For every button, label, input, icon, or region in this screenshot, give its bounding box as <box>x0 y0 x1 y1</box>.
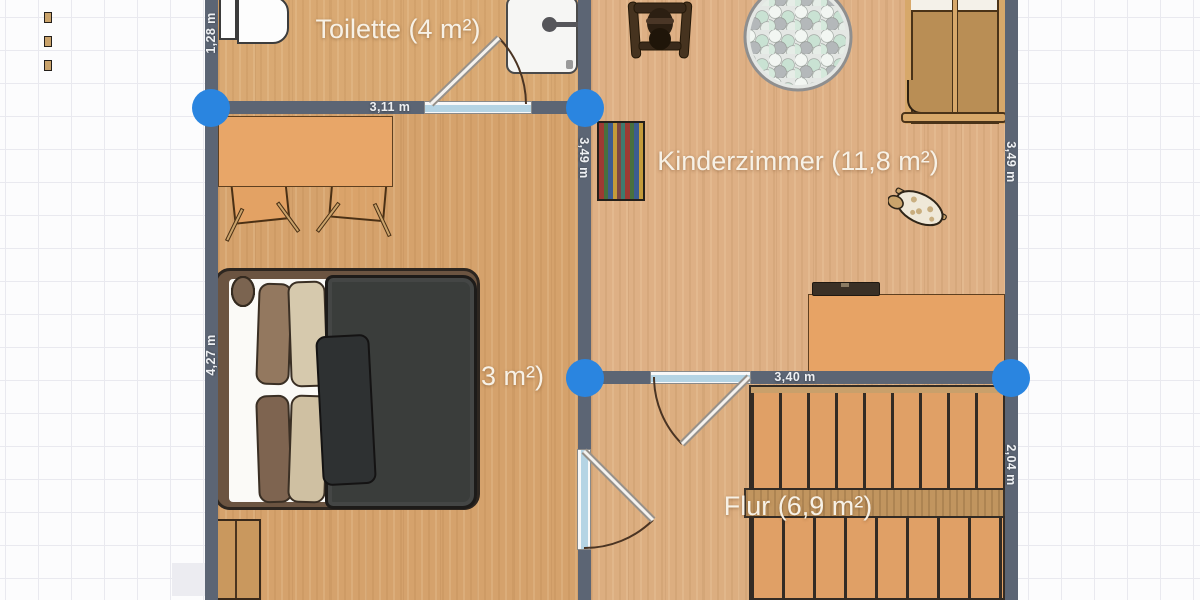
room-label-schlafzimmer: 3 m²) <box>481 361 601 392</box>
ball-pit[interactable] <box>743 0 853 92</box>
dimension-label: 2,04 m <box>1004 435 1018 495</box>
bookshelf-knob <box>44 12 52 23</box>
wardrobe-door-split <box>235 521 237 598</box>
crib-rail <box>952 0 958 118</box>
rocking-horse-icon <box>626 0 694 62</box>
door-toilette[interactable] <box>424 101 532 114</box>
wall-junction-point[interactable] <box>566 89 604 127</box>
crib-blanket-fold <box>907 80 947 114</box>
laptop-hinge <box>841 283 849 287</box>
desk[interactable] <box>808 294 1005 372</box>
dimension-label: 3,49 m <box>1004 132 1018 192</box>
shower-handle <box>566 60 573 69</box>
grid-shaded-cell <box>172 563 205 596</box>
toy-sheep-icon <box>888 180 950 238</box>
crib-footboard <box>901 112 1007 123</box>
wardrobe[interactable] <box>211 519 261 600</box>
staircase-upper-flight[interactable] <box>749 385 1005 490</box>
dimension-label: 4,27 m <box>204 325 218 385</box>
dimension-label: 1,28 m <box>204 3 218 63</box>
wall-right[interactable] <box>1005 0 1018 600</box>
headboard-bolsters <box>230 279 256 503</box>
toy-sheep[interactable] <box>888 180 950 238</box>
crib[interactable] <box>905 0 1005 124</box>
staircase-lower-flight[interactable] <box>749 516 1005 600</box>
room-label-toilette: Toilette (4 m²) <box>218 14 578 45</box>
dimension-label: 3,40 m <box>735 370 855 384</box>
wall-junction-point[interactable] <box>992 359 1030 397</box>
double-bed[interactable] <box>214 268 480 510</box>
room-label-flur: Flur (6,9 m²) <box>591 491 1005 522</box>
floor-plan-canvas: 1,28 m 3,11 m 3,49 m 4,27 m 3,40 m 3,49 … <box>0 0 1200 600</box>
laptop[interactable] <box>812 282 880 296</box>
door-flur-top[interactable] <box>650 371 751 384</box>
door-flur-left[interactable] <box>577 449 591 550</box>
rocking-horse[interactable] <box>626 0 694 62</box>
bookshelf-knob <box>44 36 52 47</box>
wall-junction-point[interactable] <box>192 89 230 127</box>
bed-cushion <box>315 334 377 487</box>
room-label-kinderzimmer: Kinderzimmer (11,8 m²) <box>591 146 1005 177</box>
dimension-label: 3,49 m <box>577 128 591 188</box>
ball-pit-icon <box>743 0 853 92</box>
bookshelf-knob <box>44 60 52 71</box>
dining-table[interactable] <box>218 116 393 187</box>
